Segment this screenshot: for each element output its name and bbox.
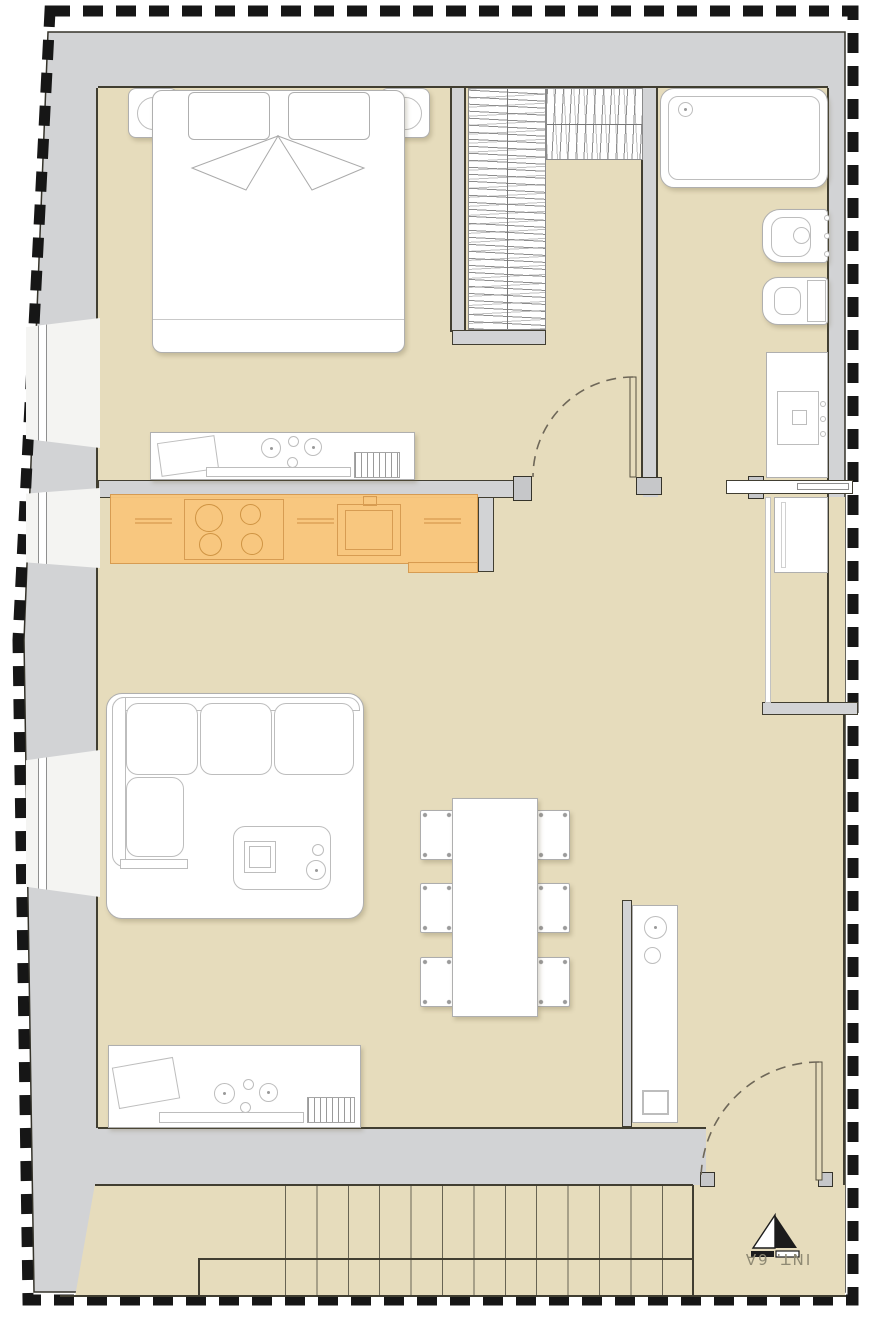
counter-dash-marks [135,519,461,523]
duvet-fold-right [278,136,364,190]
annotation-overlay [0,0,879,1318]
floor-plan: INT. 6A [0,0,879,1318]
unit-label: INT. 6A [722,1246,832,1268]
duvet-fold-left [192,136,278,190]
bedroom-door-leaf [630,377,636,477]
bedroom-door-arc [533,377,633,477]
entry-door-leaf [816,1062,822,1180]
entry-door-arc [701,1062,819,1180]
